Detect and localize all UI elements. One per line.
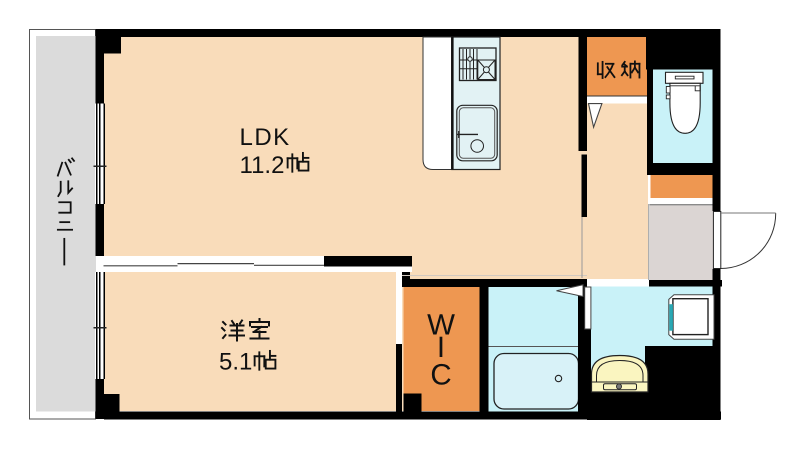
- svg-text:11.2: 11.2: [240, 152, 285, 179]
- svg-text:LDK: LDK: [240, 124, 291, 151]
- svg-text:5.1: 5.1: [219, 349, 252, 376]
- svg-text:C: C: [430, 359, 451, 392]
